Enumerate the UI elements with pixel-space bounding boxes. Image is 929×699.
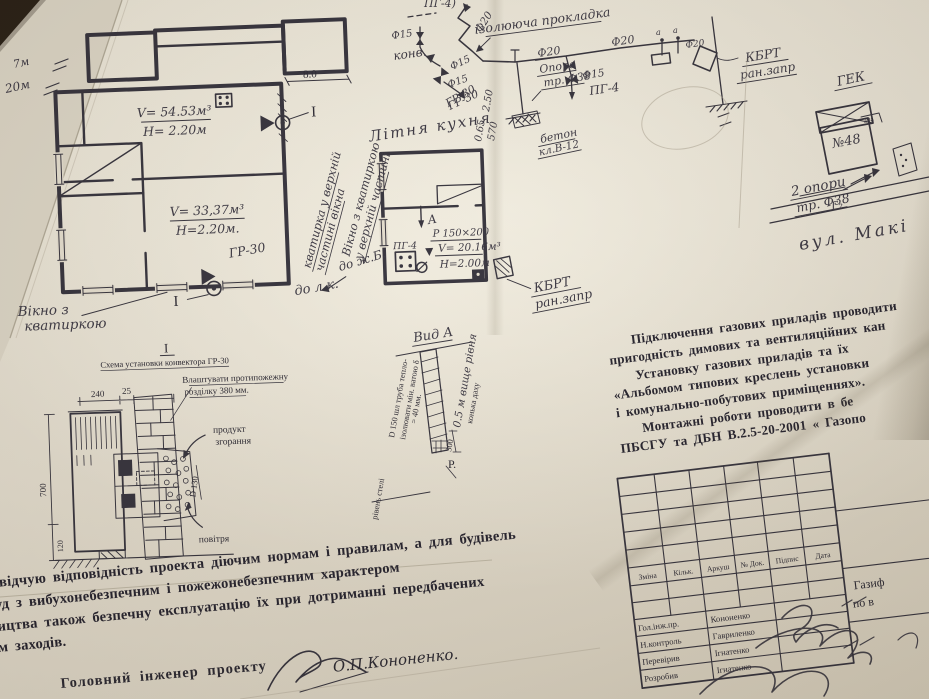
stove-pg4: ПГ-4 xyxy=(392,240,418,271)
gasket-note: ізолююча прокладка xyxy=(472,4,613,52)
name-2: Гавриленко xyxy=(712,626,755,641)
pg4-branch-label: ПГ-4 xyxy=(587,80,620,98)
scheme-title: Схема установки конвектора ГР-30 xyxy=(100,355,229,369)
a2-label: а xyxy=(673,26,678,35)
col-pidpys: Підпис xyxy=(775,554,799,566)
pipe-support xyxy=(506,63,540,128)
room2-label: V= 33,37м³ Н=2.20м. xyxy=(169,201,245,238)
pg4-label: ПГ-4 xyxy=(392,240,417,252)
dim-700-label: 700 xyxy=(38,483,48,497)
summer-kitchen: ПГ-4 А Р 150×200 V= 20.16м³ Н=2.00м Літн… xyxy=(307,78,593,320)
product-line2: згорання xyxy=(215,436,252,447)
dim-700-120: 700 120 xyxy=(35,414,65,561)
room2-volume: V= 33,37м³ xyxy=(169,201,244,219)
kbrt-valve-box xyxy=(493,256,530,290)
site-plan: ГЕК 30а №48 2 оп xyxy=(770,68,929,255)
f15-d-label: Ф15 xyxy=(582,67,606,82)
convector-scheme: I Схема установки конвектора ГР-30 Влашт… xyxy=(33,336,295,569)
house-48: 30а №48 xyxy=(820,113,882,174)
house-number: №48 xyxy=(830,132,862,152)
stove-symbol xyxy=(216,94,232,108)
room1-height: Н= 2.20м xyxy=(142,122,207,139)
window-note-line2: кватиркою xyxy=(24,316,107,335)
doc-title-1: Газиф xyxy=(853,575,886,593)
window-note: Вікно з кватиркою xyxy=(16,292,168,335)
concrete-note: бетон кл.В-12 xyxy=(533,125,581,159)
f20-c-label: Ф20 xyxy=(685,38,705,51)
role-2: Н.контроль xyxy=(640,635,683,650)
kitchen-data-labels: Р 150×200 V= 20.16м³ Н=2.00м xyxy=(415,227,501,273)
kitchen-volume: V= 20.16м³ xyxy=(438,241,501,255)
doc-title-2: по в xyxy=(852,594,875,610)
to-summer-kitchen-note: до л.к. xyxy=(293,277,339,300)
kitchen-partition xyxy=(383,205,484,209)
air-label: повітря xyxy=(199,534,230,545)
dashed-pipe xyxy=(408,13,436,17)
view-a-title: Вид А xyxy=(410,325,454,346)
name-1: Кононенко xyxy=(710,610,750,625)
gas-project-drawing-photo: 7м 20м xyxy=(0,0,929,699)
dim-d130: D 130 xyxy=(186,465,201,499)
r-label: Р. xyxy=(448,457,456,471)
a1-label: а xyxy=(656,28,661,37)
kbrt-note-piping: КБРТ ран.запр xyxy=(732,43,796,84)
ceiling-label: рівень стелі xyxy=(370,477,386,520)
room1-label: V= 54.53м³ Н= 2.20м xyxy=(137,102,213,139)
left-branch: Ф15 конв. Ф15 Ф15 ГР-30 xyxy=(391,27,481,113)
dim-300-label: 300 xyxy=(444,439,455,453)
col-data: Дата xyxy=(815,550,832,561)
chimney-detail: Вид А Р. D 150 шл труба тепло- ізолювати… xyxy=(370,325,481,520)
kitchen-door-box xyxy=(472,269,484,279)
role-4: Розробив xyxy=(644,670,679,684)
kitchen-step xyxy=(437,184,484,204)
dim-120-label: 120 xyxy=(56,540,65,552)
f20-a: Ф20 xyxy=(534,43,565,60)
col-ndok: № Док. xyxy=(740,558,765,570)
view-arrow-a: А xyxy=(418,206,438,229)
convector-gr30-label: ГР-30 xyxy=(227,239,267,260)
f15-b-label: Ф15 xyxy=(449,54,473,73)
dim-8-label: 8.0 xyxy=(303,68,318,81)
street-name: вул. Макі xyxy=(797,216,910,255)
section-label-right: I xyxy=(311,104,317,120)
kitchen-height: Н=2.00м xyxy=(439,257,490,271)
stub xyxy=(511,50,519,62)
f15-a-label: Ф15 xyxy=(391,28,413,42)
room1-volume: V= 54.53м³ xyxy=(137,102,212,120)
kbrt-note-kitchen: КБРТ ран.запр xyxy=(527,271,594,313)
col-arkush: Аркуш xyxy=(706,562,730,574)
product-line1: продукт xyxy=(213,425,247,436)
pg4-top-label: ПГ-4) xyxy=(423,0,456,10)
gasket-label: ізолююча прокладка xyxy=(474,4,612,37)
d130-label: D 130 xyxy=(187,476,200,498)
g2-label: Г₂ xyxy=(829,198,844,213)
section-mark-right: I xyxy=(260,104,317,131)
role-3: Перевірив xyxy=(642,653,680,667)
dim-570-label: 570 xyxy=(486,120,500,141)
konv-label: конв. xyxy=(392,45,427,63)
section-label-bottom: I xyxy=(173,294,179,310)
role-1: Гол.інж.пр. xyxy=(638,618,680,633)
meter-assembly: а а Ф20 xyxy=(651,26,705,65)
convector-unit xyxy=(68,410,127,552)
dim-300: 300 xyxy=(444,430,461,452)
burner-assembly xyxy=(114,453,160,518)
col-kilk: Кільк. xyxy=(673,566,694,577)
scheme-mark: I xyxy=(164,340,169,355)
dim-240-label: 240 xyxy=(91,389,105,399)
pencil-circle xyxy=(635,78,736,159)
gas-cabinet xyxy=(893,143,917,176)
room2-height: Н=2.20м. xyxy=(175,220,240,237)
chimney-pipe xyxy=(420,349,448,453)
gek-note: ГЕК xyxy=(832,68,872,91)
dim-250-label: 2.50 xyxy=(481,88,496,113)
name-3: Ігнатенко xyxy=(714,644,750,658)
view-a-label: А xyxy=(425,212,437,228)
vent-size: Р 150×200 xyxy=(431,227,489,240)
firebreak-line2: розділку 380 мм. xyxy=(184,385,249,397)
firebreak-note: Влаштувати протипожежну розділку 380 мм. xyxy=(169,371,290,420)
dim-25-label: 25 xyxy=(122,386,132,396)
